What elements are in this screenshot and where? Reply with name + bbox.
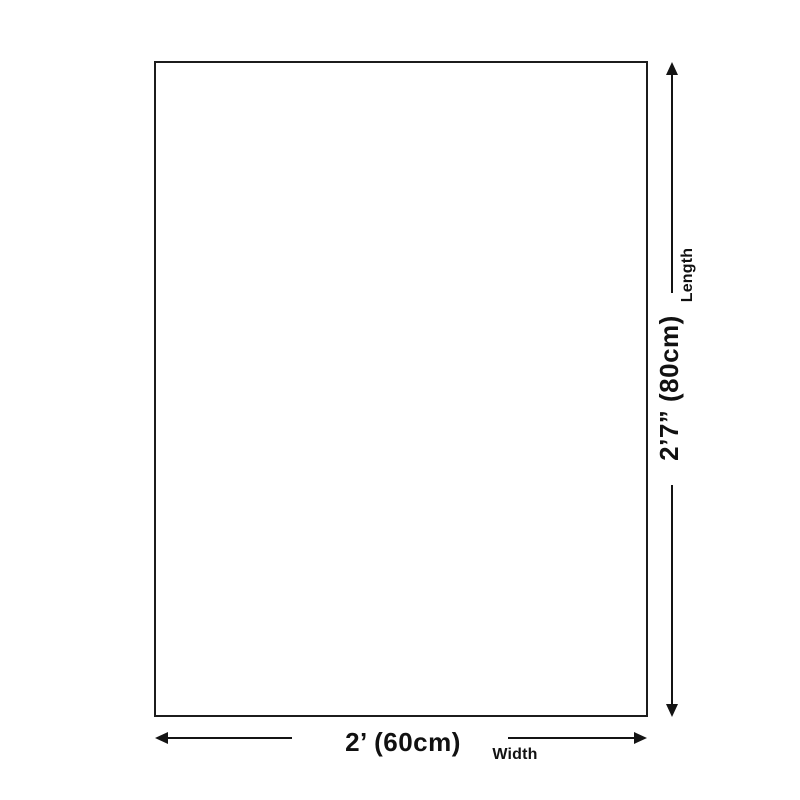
length-dimension-line-bottom bbox=[671, 485, 673, 707]
arrow-down-icon bbox=[666, 704, 678, 717]
length-label: Length bbox=[680, 248, 696, 303]
arrow-right-icon bbox=[634, 732, 647, 744]
product-outline bbox=[154, 61, 648, 717]
width-label: Width bbox=[492, 747, 537, 763]
width-value: 2’ (60cm) bbox=[345, 729, 461, 755]
width-dimension-line-right bbox=[508, 737, 636, 739]
length-dimension-line-top bbox=[671, 73, 673, 293]
width-dimension-line-left bbox=[166, 737, 292, 739]
length-value: 2’7” (80cm) bbox=[656, 315, 682, 461]
dimension-diagram: Length 2’7” (80cm) 2’ (60cm) Width bbox=[0, 0, 800, 800]
